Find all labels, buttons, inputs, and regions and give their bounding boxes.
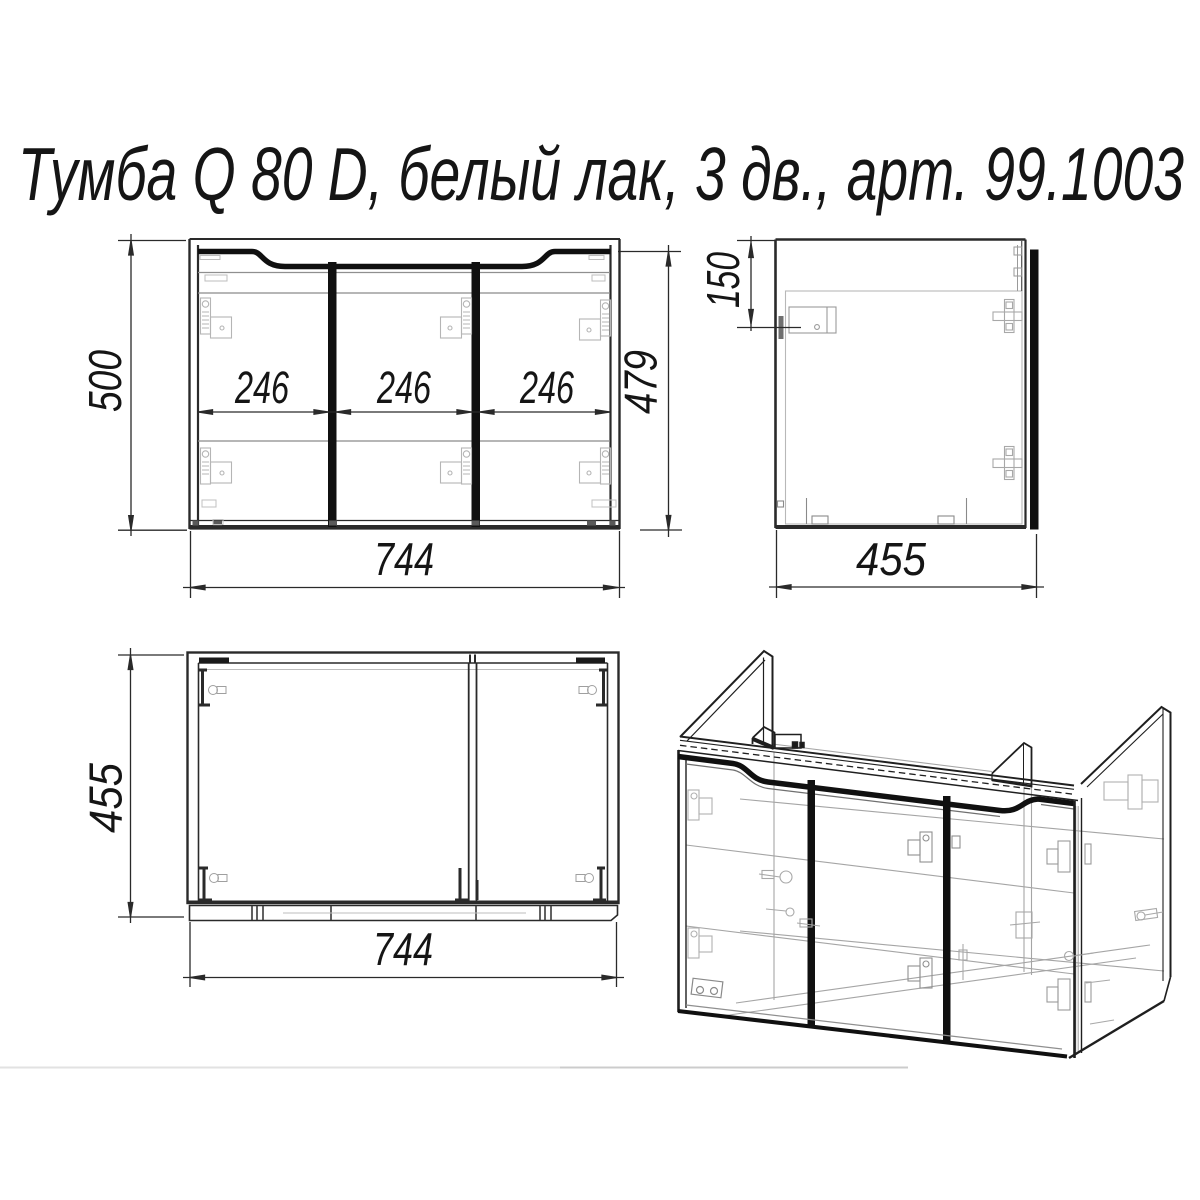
svg-text:150: 150 (697, 252, 749, 308)
svg-text:500: 500 (79, 350, 131, 412)
svg-text:246: 246 (376, 362, 431, 413)
svg-text:455: 455 (80, 763, 132, 833)
svg-text:246: 246 (519, 362, 574, 413)
svg-text:246: 246 (234, 362, 289, 413)
svg-text:744: 744 (374, 533, 434, 585)
svg-text:455: 455 (856, 533, 926, 585)
svg-text:479: 479 (615, 350, 667, 414)
svg-text:744: 744 (373, 923, 433, 975)
svg-text:Тумба Q 80 D, белый лак, 3 дв.: Тумба Q 80 D, белый лак, 3 дв., арт. 99.… (18, 132, 1184, 216)
